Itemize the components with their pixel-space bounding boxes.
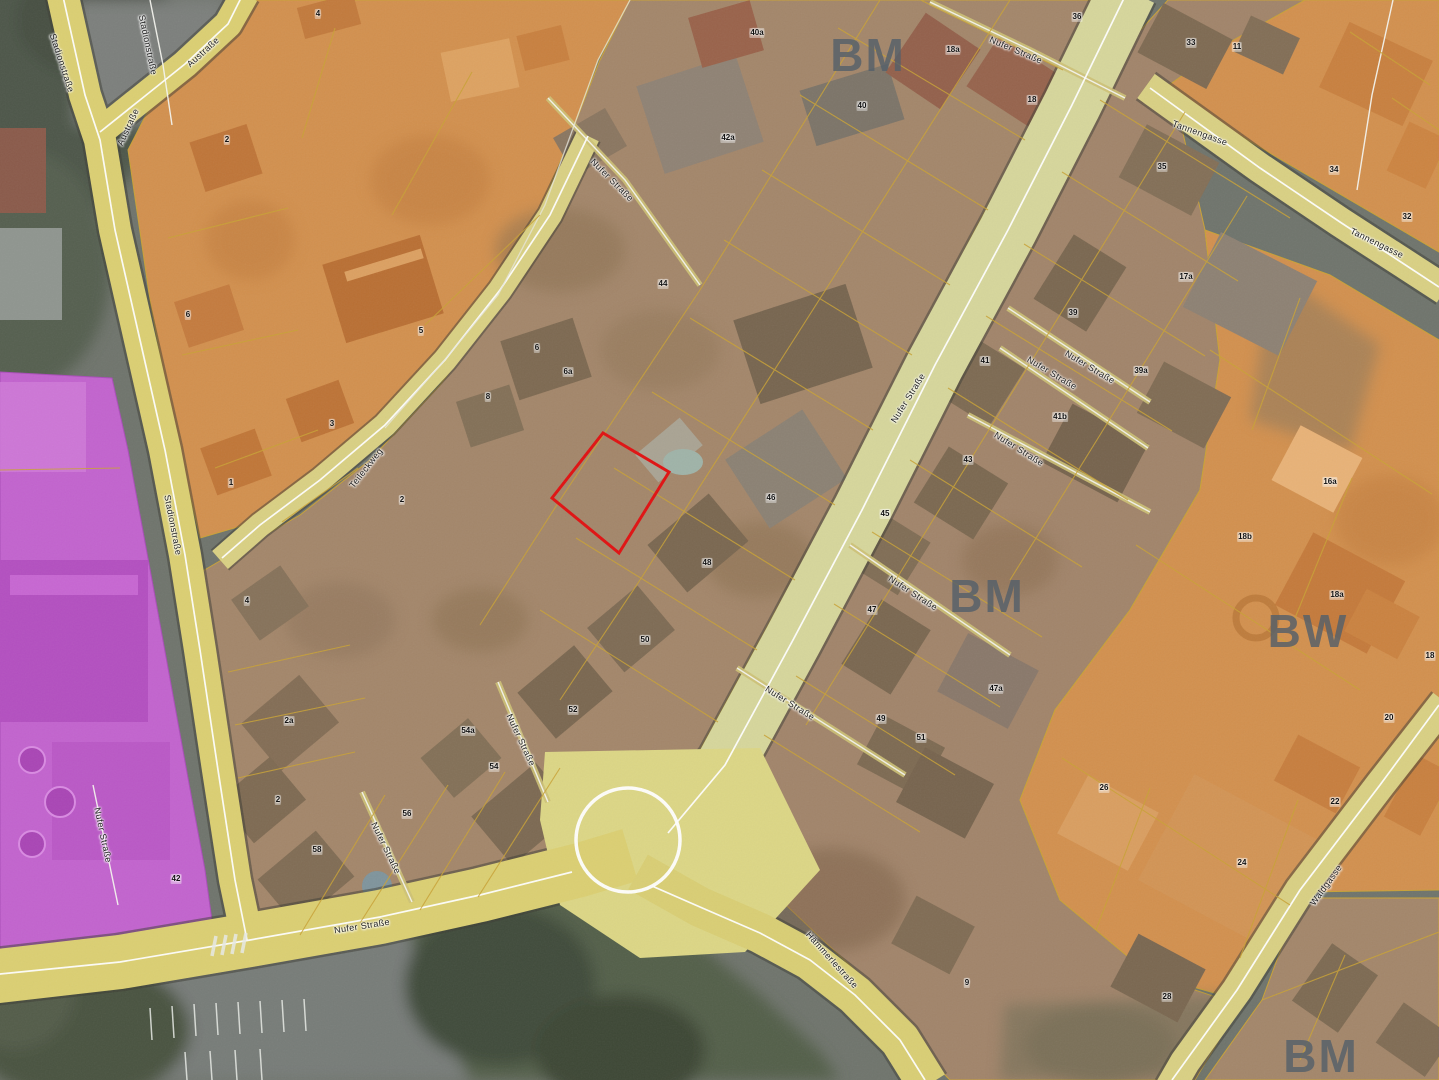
zoning-map-viewport[interactable]: BMBMBWBMStadionstraßeStadionstraßeAustra…: [0, 0, 1439, 1080]
zoning-map-canvas[interactable]: [0, 0, 1439, 1080]
grain-overlay: [0, 0, 1439, 1080]
